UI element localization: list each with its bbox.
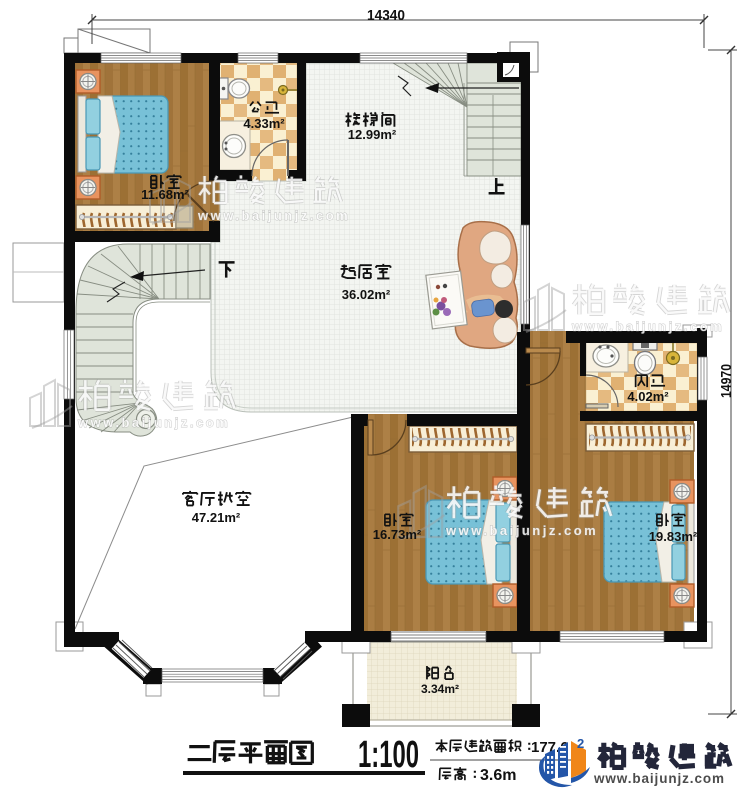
svg-text:14970: 14970 bbox=[718, 364, 735, 398]
svg-text:36.02m²: 36.02m² bbox=[342, 287, 391, 302]
svg-text:www.baijunjz.com: www.baijunjz.com bbox=[197, 208, 350, 223]
svg-text:19.83m²: 19.83m² bbox=[649, 529, 698, 544]
svg-text:3.34m²: 3.34m² bbox=[421, 682, 459, 696]
svg-text:16.73m²: 16.73m² bbox=[373, 527, 422, 542]
svg-text:4.02m²: 4.02m² bbox=[627, 389, 669, 404]
svg-text:1:100: 1:100 bbox=[358, 734, 419, 776]
svg-text:14340: 14340 bbox=[367, 7, 405, 24]
svg-text:11.68m²: 11.68m² bbox=[141, 187, 189, 202]
svg-text:12.99m²: 12.99m² bbox=[348, 127, 397, 142]
svg-text:2: 2 bbox=[577, 736, 584, 751]
svg-text:www.baijunjz.com: www.baijunjz.com bbox=[571, 319, 724, 334]
svg-text:www.baijunjz.com: www.baijunjz.com bbox=[77, 415, 230, 430]
svg-text:3.6m: 3.6m bbox=[480, 767, 516, 784]
svg-text:www.baijunjz.com: www.baijunjz.com bbox=[445, 523, 598, 538]
svg-text:47.21m²: 47.21m² bbox=[192, 510, 241, 525]
svg-text:4.33m²: 4.33m² bbox=[243, 116, 285, 131]
svg-text:www.baijunjz.com: www.baijunjz.com bbox=[593, 771, 725, 786]
